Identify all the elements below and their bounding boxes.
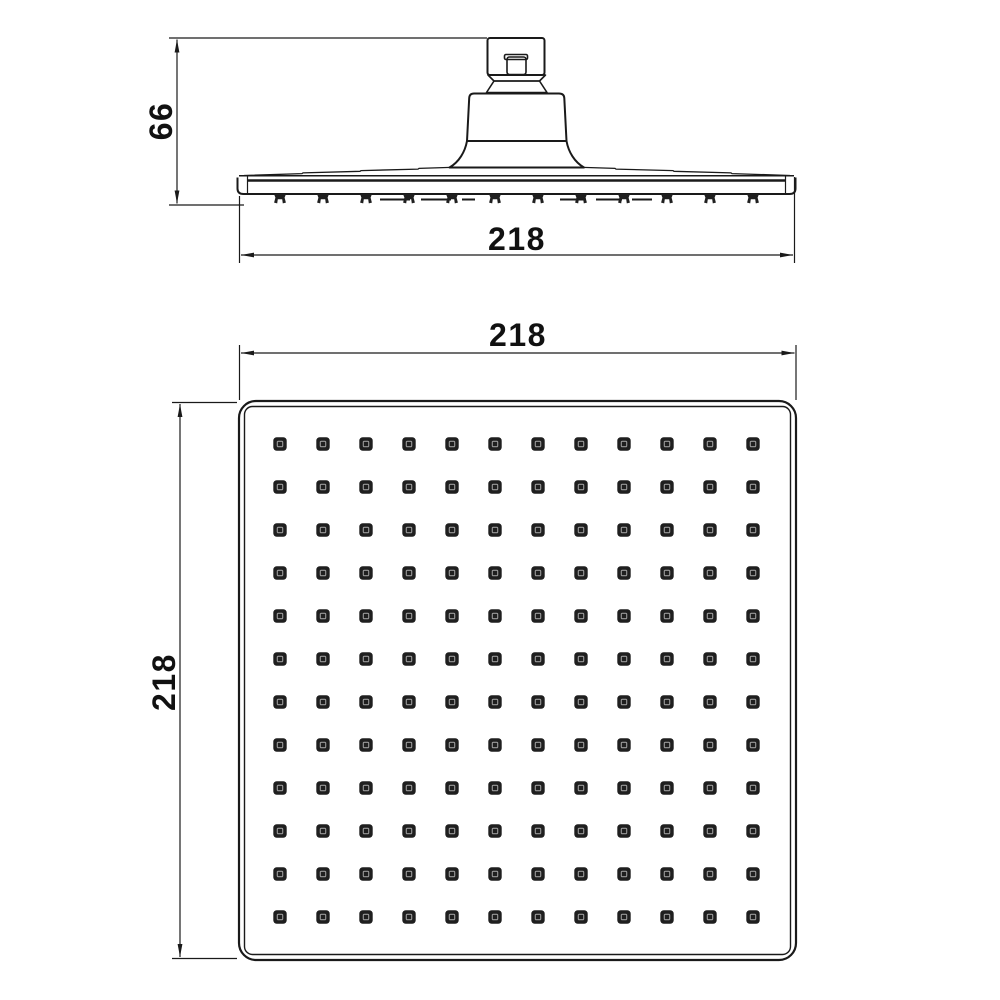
spray-nozzle	[273, 738, 286, 751]
face-view: 218 218	[146, 317, 796, 960]
spray-nozzle	[660, 523, 673, 536]
spray-nozzle	[703, 781, 716, 794]
spray-nozzle	[574, 566, 587, 579]
spray-nozzle	[660, 738, 673, 751]
spray-nozzle-side	[704, 194, 716, 203]
spray-nozzle	[660, 781, 673, 794]
spray-nozzle	[488, 480, 501, 493]
spray-nozzle	[359, 695, 372, 708]
neck-flange	[487, 81, 548, 93]
spray-nozzle-side	[403, 194, 415, 203]
spray-nozzle	[617, 652, 630, 665]
spray-nozzle	[746, 480, 759, 493]
spray-nozzle	[273, 652, 286, 665]
spray-nozzle	[617, 781, 630, 794]
spray-nozzle	[359, 652, 372, 665]
spray-nozzle	[359, 738, 372, 751]
spray-nozzle	[746, 652, 759, 665]
spray-nozzle-side	[661, 194, 673, 203]
spray-nozzle-side	[747, 194, 759, 203]
spray-nozzle	[402, 738, 415, 751]
spray-nozzle	[574, 480, 587, 493]
spray-nozzle	[445, 910, 458, 923]
spray-nozzle	[746, 609, 759, 622]
spray-nozzle	[402, 437, 415, 450]
spray-nozzle	[703, 738, 716, 751]
spray-nozzle	[703, 910, 716, 923]
drawing-sheet: 66 218	[0, 0, 1000, 1000]
spray-nozzle	[316, 652, 329, 665]
spray-nozzle	[746, 824, 759, 837]
spray-nozzle	[316, 910, 329, 923]
spray-nozzle	[316, 695, 329, 708]
spray-nozzle	[402, 652, 415, 665]
spray-nozzle	[402, 910, 415, 923]
spray-nozzle	[574, 437, 587, 450]
spray-nozzle	[488, 652, 501, 665]
spray-nozzle	[488, 523, 501, 536]
spray-nozzle	[703, 523, 716, 536]
spray-nozzle	[488, 609, 501, 622]
spray-nozzle	[402, 867, 415, 880]
spray-nozzle	[574, 781, 587, 794]
spray-nozzle	[746, 910, 759, 923]
spray-nozzle	[617, 437, 630, 450]
nozzle-grid	[273, 437, 759, 923]
spray-nozzle	[273, 824, 286, 837]
spray-nozzle	[617, 738, 630, 751]
spray-nozzle	[445, 824, 458, 837]
spray-nozzle	[574, 867, 587, 880]
spray-nozzle	[660, 437, 673, 450]
spray-nozzle-side	[618, 194, 630, 203]
spray-nozzle	[445, 566, 458, 579]
spray-nozzle	[445, 437, 458, 450]
spray-nozzle	[316, 523, 329, 536]
spray-nozzle	[531, 910, 544, 923]
spray-nozzle	[703, 437, 716, 450]
spray-nozzle	[445, 867, 458, 880]
spray-nozzle	[703, 652, 716, 665]
spray-nozzle	[488, 695, 501, 708]
spray-nozzle	[273, 437, 286, 450]
spray-nozzle	[617, 523, 630, 536]
spray-nozzle	[402, 523, 415, 536]
spray-nozzle	[402, 695, 415, 708]
spray-nozzle	[488, 566, 501, 579]
spray-nozzle-side	[360, 194, 372, 203]
spray-nozzle	[273, 910, 286, 923]
spray-nozzle	[445, 652, 458, 665]
spray-nozzle	[316, 867, 329, 880]
spray-nozzle	[703, 480, 716, 493]
spray-nozzle	[273, 566, 286, 579]
spray-nozzle	[660, 609, 673, 622]
dimension-label-218-face-width: 218	[489, 317, 547, 353]
spray-nozzle	[703, 824, 716, 837]
cone-body	[467, 94, 567, 142]
spray-nozzle	[273, 609, 286, 622]
dimension-218-side-width: 218	[240, 177, 795, 263]
spray-nozzle	[703, 609, 716, 622]
spray-nozzle	[660, 867, 673, 880]
head-disc	[238, 167, 796, 203]
dimension-218-face-width: 218	[240, 317, 797, 400]
spray-nozzle	[488, 781, 501, 794]
disc-top-surface-left	[244, 167, 451, 175]
cone-flare	[450, 141, 585, 168]
spray-nozzle	[660, 652, 673, 665]
spray-nozzle	[746, 738, 759, 751]
spray-nozzle	[617, 867, 630, 880]
spray-nozzle	[445, 738, 458, 751]
spray-nozzle	[273, 867, 286, 880]
spray-nozzle	[746, 566, 759, 579]
spray-nozzle	[531, 437, 544, 450]
spray-nozzle	[316, 824, 329, 837]
spray-nozzle	[617, 480, 630, 493]
spray-nozzle	[316, 738, 329, 751]
side-nozzle-row	[274, 194, 759, 203]
dimension-label-218-side: 218	[488, 221, 546, 257]
spray-nozzle	[531, 652, 544, 665]
spray-nozzle	[488, 824, 501, 837]
spray-nozzle	[617, 695, 630, 708]
spray-nozzle	[660, 910, 673, 923]
spray-nozzle	[574, 738, 587, 751]
spray-nozzle	[617, 824, 630, 837]
spray-nozzle	[574, 695, 587, 708]
spray-nozzle	[660, 566, 673, 579]
spray-nozzle	[273, 695, 286, 708]
spray-nozzle	[746, 523, 759, 536]
spray-nozzle	[488, 867, 501, 880]
spray-nozzle-side	[489, 194, 501, 203]
spray-nozzle	[531, 867, 544, 880]
spray-nozzle	[445, 480, 458, 493]
spray-nozzle	[617, 609, 630, 622]
spray-nozzle	[617, 910, 630, 923]
spray-nozzle	[488, 738, 501, 751]
spray-nozzle	[316, 609, 329, 622]
spray-nozzle	[316, 480, 329, 493]
spray-nozzle	[359, 480, 372, 493]
spray-nozzle	[531, 781, 544, 794]
spray-nozzle	[660, 824, 673, 837]
spray-nozzle	[402, 480, 415, 493]
spray-nozzle	[402, 566, 415, 579]
spray-nozzle	[316, 566, 329, 579]
spray-nozzle	[660, 480, 673, 493]
spray-nozzle-side	[532, 194, 544, 203]
spray-nozzle	[445, 781, 458, 794]
side-view: 66 218	[143, 38, 796, 263]
spray-nozzle	[445, 695, 458, 708]
spray-nozzle	[359, 867, 372, 880]
spray-nozzle	[273, 781, 286, 794]
spray-nozzle	[574, 652, 587, 665]
spray-nozzle	[402, 609, 415, 622]
spray-nozzle	[574, 523, 587, 536]
spray-nozzle-side	[575, 194, 587, 203]
spray-nozzle	[531, 523, 544, 536]
spray-nozzle	[746, 695, 759, 708]
spray-nozzle	[359, 910, 372, 923]
spray-nozzle	[359, 566, 372, 579]
spray-nozzle	[746, 867, 759, 880]
dimension-label-218-face-height: 218	[146, 653, 182, 711]
spray-nozzle	[531, 738, 544, 751]
spray-nozzle	[359, 824, 372, 837]
spray-nozzle	[316, 781, 329, 794]
spray-nozzle	[703, 566, 716, 579]
spray-nozzle	[359, 781, 372, 794]
dimension-218-face-height: 218	[146, 403, 237, 959]
spray-nozzle	[359, 609, 372, 622]
spray-nozzle	[531, 566, 544, 579]
spray-nozzle	[703, 867, 716, 880]
spray-nozzle	[746, 437, 759, 450]
spray-nozzle	[359, 523, 372, 536]
spray-nozzle	[531, 609, 544, 622]
spray-nozzle	[531, 695, 544, 708]
spray-nozzle	[316, 437, 329, 450]
spray-nozzle	[574, 824, 587, 837]
spray-nozzle	[402, 781, 415, 794]
spray-nozzle	[402, 824, 415, 837]
spray-nozzle	[531, 480, 544, 493]
spray-nozzle	[660, 695, 673, 708]
spray-nozzle	[703, 695, 716, 708]
spray-nozzle-side	[317, 194, 329, 203]
spray-nozzle	[617, 566, 630, 579]
spray-nozzle	[273, 523, 286, 536]
dimension-label-66: 66	[143, 102, 179, 141]
spray-nozzle	[488, 437, 501, 450]
spray-nozzle-side	[446, 194, 458, 203]
spray-nozzle	[574, 609, 587, 622]
spray-nozzle	[488, 910, 501, 923]
spray-nozzle-side	[274, 194, 286, 203]
spray-nozzle	[574, 910, 587, 923]
spray-nozzle	[746, 781, 759, 794]
spray-nozzle	[445, 523, 458, 536]
technical-drawing: 66 218	[0, 0, 1000, 1000]
spray-nozzle	[531, 824, 544, 837]
spray-nozzle	[445, 609, 458, 622]
spray-nozzle	[273, 480, 286, 493]
disc-top-surface-right	[583, 167, 790, 175]
spray-nozzle	[359, 437, 372, 450]
